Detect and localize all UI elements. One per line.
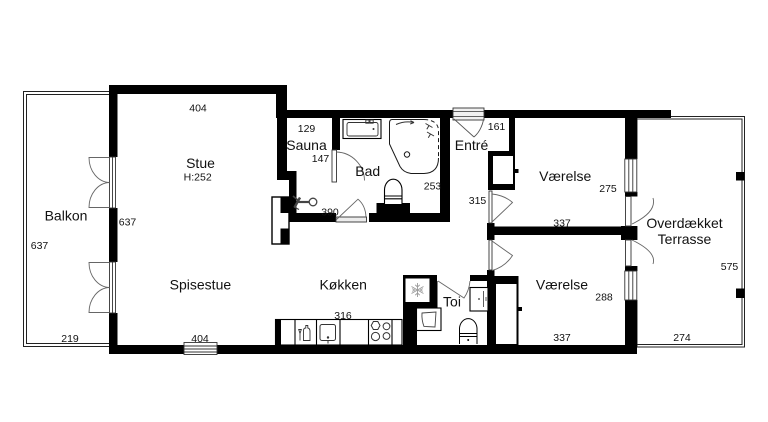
svg-text:161: 161 (488, 121, 506, 133)
svg-text:253: 253 (424, 181, 442, 193)
svg-text:404: 404 (189, 103, 207, 115)
svg-text:Værelse: Værelse (539, 168, 591, 184)
svg-text:Toi: Toi (443, 294, 461, 310)
svg-text:Køkken: Køkken (319, 277, 366, 293)
svg-text:H:252: H:252 (184, 172, 212, 184)
svg-text:Spisestue: Spisestue (170, 277, 232, 293)
svg-text:Stue: Stue (186, 155, 215, 171)
svg-text:Terrasse: Terrasse (658, 231, 712, 247)
svg-text:Balkon: Balkon (45, 208, 88, 224)
svg-text:315: 315 (469, 195, 487, 207)
svg-text:Sauna: Sauna (286, 137, 327, 153)
svg-text:575: 575 (721, 261, 739, 273)
svg-text:316: 316 (334, 310, 352, 322)
svg-text:Overdækket: Overdækket (646, 215, 722, 231)
svg-text:Bad: Bad (355, 163, 380, 179)
svg-text:288: 288 (595, 291, 613, 303)
svg-text:147: 147 (312, 153, 330, 165)
svg-text:Entré: Entré (455, 137, 489, 153)
svg-text:274: 274 (673, 332, 691, 344)
svg-text:404: 404 (191, 333, 209, 345)
svg-text:Værelse: Værelse (536, 277, 588, 293)
svg-text:637: 637 (31, 240, 49, 252)
svg-text:337: 337 (553, 332, 571, 344)
svg-text:637: 637 (119, 217, 137, 229)
svg-text:337: 337 (553, 218, 571, 230)
svg-text:129: 129 (298, 123, 316, 135)
svg-text:219: 219 (61, 333, 79, 345)
svg-text:390: 390 (321, 207, 339, 219)
svg-text:275: 275 (599, 183, 617, 195)
